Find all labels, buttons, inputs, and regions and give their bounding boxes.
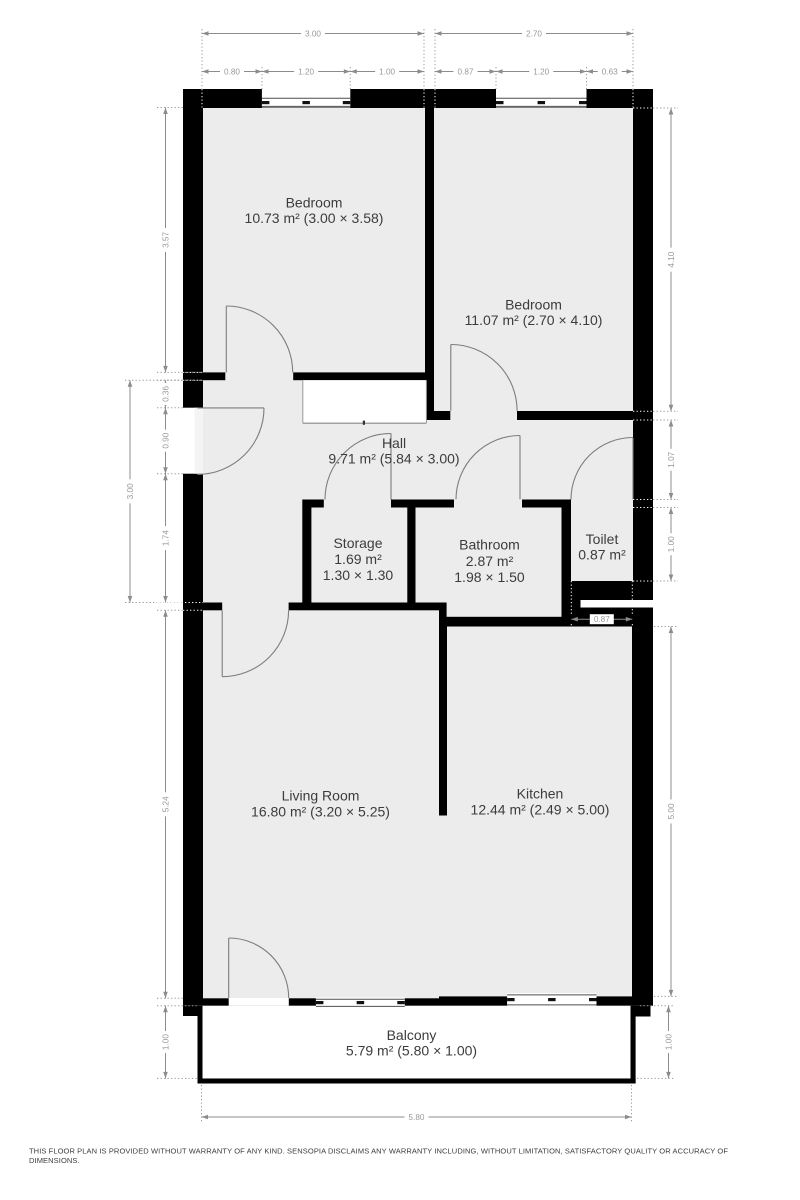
svg-text:0.90: 0.90: [161, 432, 170, 448]
svg-text:1.00: 1.00: [379, 67, 395, 76]
svg-text:Bathroom: Bathroom: [459, 537, 520, 553]
svg-text:3.00: 3.00: [305, 29, 321, 38]
svg-text:16.80 m² (3.20 × 5.25): 16.80 m² (3.20 × 5.25): [251, 804, 390, 820]
svg-text:0.36: 0.36: [161, 386, 170, 402]
svg-text:10.73 m² (3.00 × 3.58): 10.73 m² (3.00 × 3.58): [245, 210, 384, 226]
svg-text:Living Room: Living Room: [282, 788, 360, 804]
svg-text:1.74: 1.74: [161, 530, 170, 546]
svg-text:0.63: 0.63: [602, 67, 618, 76]
svg-text:11.07 m² (2.70 × 4.10): 11.07 m² (2.70 × 4.10): [465, 312, 603, 328]
svg-text:1.07: 1.07: [667, 451, 676, 467]
svg-text:5.79 m² (5.80 × 1.00): 5.79 m² (5.80 × 1.00): [346, 1043, 477, 1059]
svg-text:3.00: 3.00: [126, 483, 135, 499]
svg-text:THIS FLOOR PLAN IS PROVIDED WI: THIS FLOOR PLAN IS PROVIDED WITHOUT WARR…: [29, 1147, 728, 1156]
svg-text:Balcony: Balcony: [387, 1027, 437, 1043]
svg-text:Toilet: Toilet: [586, 531, 619, 547]
svg-text:5.00: 5.00: [667, 803, 676, 819]
svg-text:1.98 × 1.50: 1.98 × 1.50: [454, 569, 525, 585]
svg-text:0.80: 0.80: [224, 67, 240, 76]
svg-text:3.57: 3.57: [161, 232, 170, 248]
svg-text:5.80: 5.80: [409, 1113, 425, 1122]
svg-text:Kitchen: Kitchen: [517, 786, 564, 802]
svg-text:1.00: 1.00: [161, 1034, 170, 1050]
svg-text:2.87 m²: 2.87 m²: [466, 553, 514, 569]
svg-text:0.87: 0.87: [458, 67, 474, 76]
svg-text:5.24: 5.24: [161, 796, 170, 812]
svg-text:9.71 m² (5.84 × 3.00): 9.71 m² (5.84 × 3.00): [328, 451, 459, 467]
svg-text:DIMENSIONS.: DIMENSIONS.: [29, 1156, 80, 1165]
svg-text:Hall: Hall: [382, 435, 406, 451]
svg-text:1.20: 1.20: [533, 67, 549, 76]
svg-text:4.10: 4.10: [667, 251, 676, 267]
svg-text:0.87: 0.87: [594, 615, 610, 624]
svg-text:12.44 m² (2.49 × 5.00): 12.44 m² (2.49 × 5.00): [471, 802, 610, 818]
svg-text:1.00: 1.00: [667, 536, 676, 552]
svg-text:1.30 × 1.30: 1.30 × 1.30: [323, 567, 394, 583]
svg-text:Bedroom: Bedroom: [286, 195, 343, 211]
svg-text:1.20: 1.20: [298, 67, 314, 76]
svg-text:Storage: Storage: [333, 535, 382, 551]
svg-text:1.69 m²: 1.69 m²: [334, 551, 382, 567]
svg-text:2.70: 2.70: [526, 29, 542, 38]
svg-text:0.87 m²: 0.87 m²: [578, 547, 626, 563]
svg-text:Bedroom: Bedroom: [505, 297, 562, 313]
svg-text:1.00: 1.00: [664, 1034, 673, 1050]
